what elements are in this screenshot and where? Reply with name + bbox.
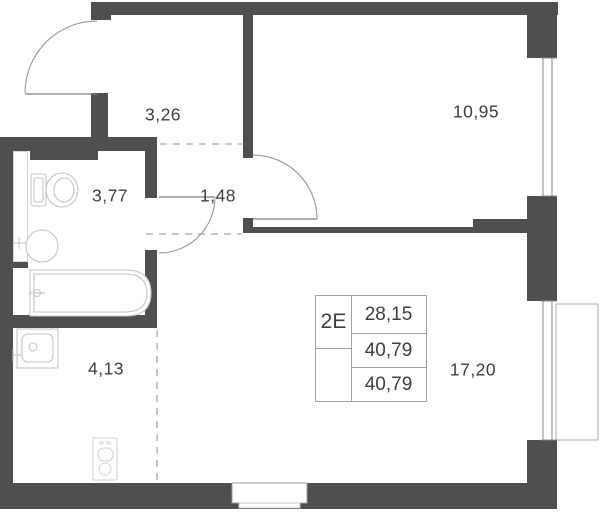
window-bedroom <box>541 58 557 196</box>
kitchen-sink <box>13 329 58 368</box>
wall-shaft-divider <box>13 262 28 268</box>
wall-bedroom-living-thick <box>473 219 530 233</box>
wall-hallway-bedroom-divider <box>243 15 253 158</box>
stove <box>93 438 117 480</box>
wall-bathroom-right-upper <box>145 151 157 198</box>
wall-bathroom-top <box>0 137 157 151</box>
walls <box>0 2 558 509</box>
area-total-coeff: 40,79 <box>352 368 425 401</box>
floor-plan: 3,26 10,95 3,77 1,48 4,13 17,20 2Е 28,15… <box>0 0 601 516</box>
table-divider-left <box>316 348 351 349</box>
area-label-corridor: 1,48 <box>200 186 236 207</box>
flat-type: 2Е <box>316 296 351 348</box>
bottom-wall-vent-inset <box>232 483 307 508</box>
bathtub <box>29 270 151 316</box>
wall-top <box>91 2 558 15</box>
flat-info-table: 2Е 28,15 40,79 40,79 <box>315 295 427 402</box>
balcony-outline <box>556 304 598 440</box>
wall-bathroom-bottom <box>0 315 157 328</box>
area-total: 40,79 <box>352 334 425 367</box>
floor-plan-drawing <box>0 0 601 516</box>
window-living-room <box>541 301 557 440</box>
area-label-bedroom: 10,95 <box>453 102 499 123</box>
area-label-living-room: 17,20 <box>450 360 496 381</box>
toilet <box>31 173 78 207</box>
area-label-kitchen: 4,13 <box>88 359 124 380</box>
entrance-door <box>25 21 97 94</box>
wall-right-upper-block <box>527 15 557 58</box>
wall-bathroom-top-inner <box>30 151 98 160</box>
wall-entrance-jamb-bottom <box>91 93 108 137</box>
wall-right-middle-block <box>527 196 557 301</box>
bedroom-door <box>253 155 317 219</box>
area-label-hallway: 3,26 <box>145 105 181 126</box>
plumbing-shaft <box>14 152 28 262</box>
wall-entrance-jamb-top <box>91 2 111 20</box>
area-label-bathroom: 3,77 <box>92 186 128 207</box>
area-living-sum: 28,15 <box>352 296 425 333</box>
